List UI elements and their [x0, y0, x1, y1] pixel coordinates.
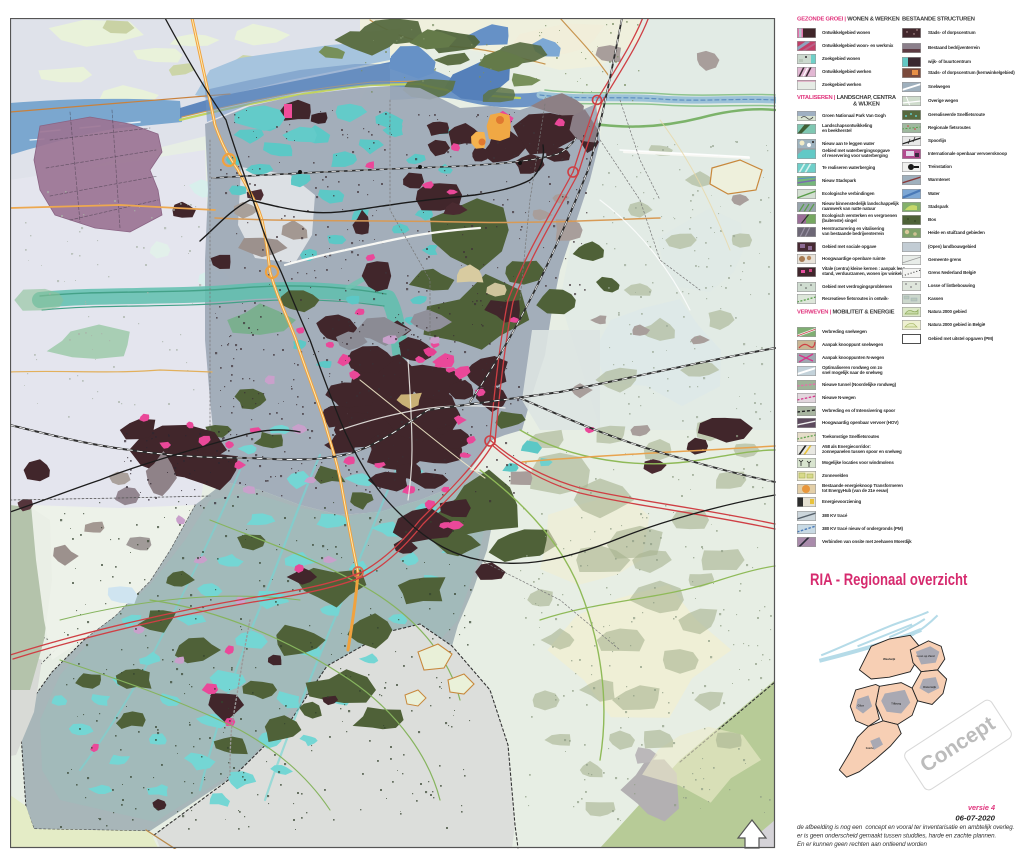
svg-text:Waalwijk: Waalwijk	[883, 657, 896, 661]
svg-text:Goirle: Goirle	[866, 746, 874, 750]
svg-text:Gilze: Gilze	[858, 703, 865, 707]
svg-text:Loon op Zand: Loon op Zand	[917, 654, 935, 658]
svg-text:Oisterwijk: Oisterwijk	[923, 685, 936, 689]
svg-text:Tilburg: Tilburg	[891, 701, 901, 705]
